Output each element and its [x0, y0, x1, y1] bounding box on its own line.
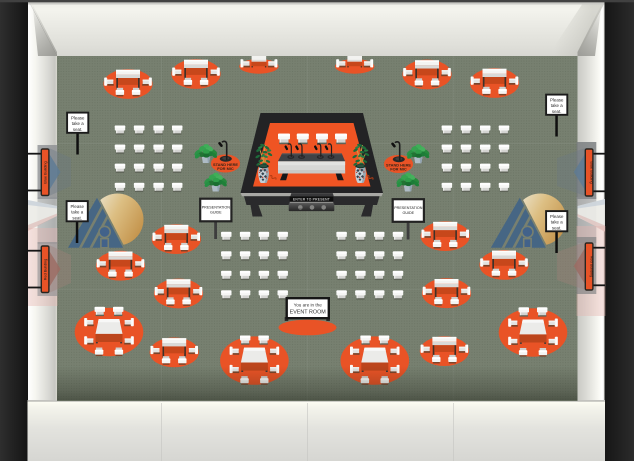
- svg-text:EVENT ROOM: EVENT ROOM: [290, 310, 327, 316]
- svg-text:Blue Building: Blue Building: [44, 161, 48, 183]
- svg-text:FOR MIC: FOR MIC: [217, 166, 234, 171]
- svg-text:Red Building: Red Building: [590, 256, 594, 278]
- svg-text:Red Building: Red Building: [44, 259, 48, 281]
- svg-text:FOR MIC: FOR MIC: [390, 167, 407, 172]
- svg-text:You are in the: You are in the: [294, 303, 323, 308]
- svg-text:Blue Building: Blue Building: [590, 161, 594, 183]
- svg-text:ENTER TO PRESENT: ENTER TO PRESENT: [293, 197, 330, 201]
